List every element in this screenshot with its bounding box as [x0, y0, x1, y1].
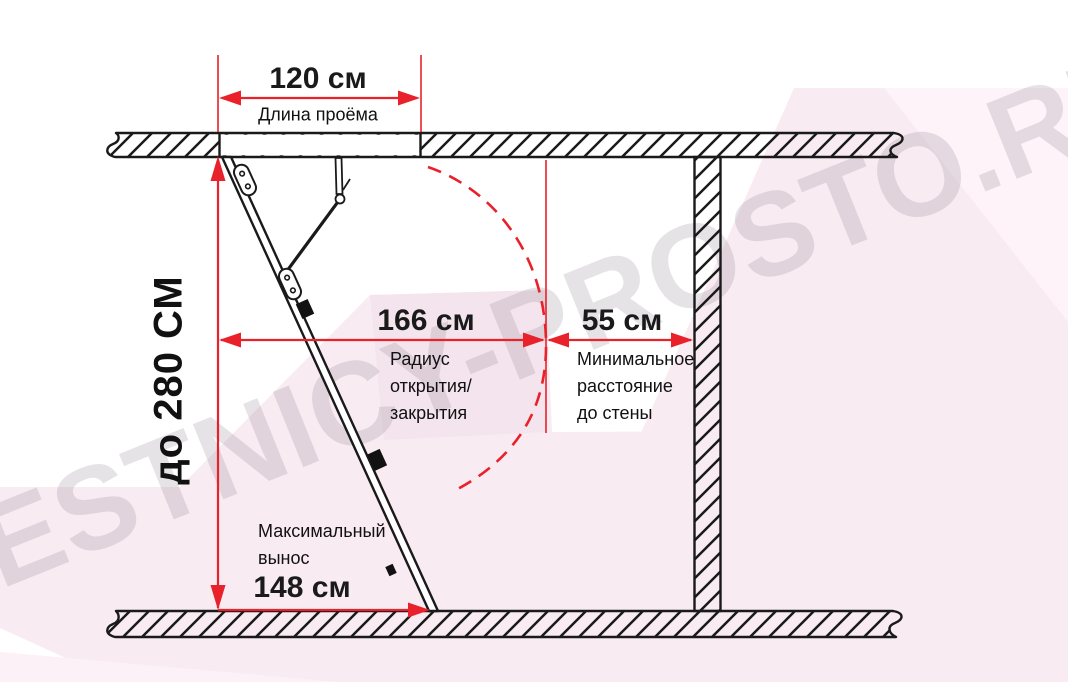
- dimension-radius-label-line3: закрытия: [390, 400, 472, 427]
- arrowhead: [211, 585, 226, 610]
- arrowhead: [547, 333, 569, 348]
- dimension-extension-label: Максимальный вынос: [258, 518, 386, 572]
- arrowhead: [219, 91, 241, 106]
- ladder-foot-stop: [385, 564, 396, 576]
- wall: [695, 157, 721, 611]
- arrowhead: [523, 333, 545, 348]
- dimension-extension-label-line2: вынос: [258, 545, 386, 572]
- ladder-arm-joint-top: [336, 195, 345, 204]
- dimension-wall-value: 55 см: [582, 304, 663, 338]
- ceiling: [107, 133, 902, 157]
- dimension-extension-value: 148 см: [253, 571, 350, 605]
- dimension-opening-label: Длина проёма: [258, 102, 378, 129]
- dimension-radius-label: Радиус открытия/ закрытия: [390, 346, 472, 427]
- dimension-wall-label-line1: Минимальное: [577, 346, 694, 373]
- floor: [107, 611, 901, 637]
- ceiling-opening: [220, 135, 420, 156]
- dimension-wall-label-line2: расстояние: [577, 373, 694, 400]
- dimension-extension-label-line1: Максимальный: [258, 518, 386, 545]
- attic-ladder-dimensions-diagram: LESTNICY-PROSTO.RU: [0, 0, 1068, 682]
- dimension-wall-label-line3: до стены: [577, 400, 694, 427]
- dimension-opening-value: 120 см: [269, 62, 366, 96]
- arrowhead: [398, 91, 420, 106]
- ladder-rod-hook: [343, 179, 350, 190]
- dimension-radius-label-line1: Радиус: [390, 346, 472, 373]
- dimension-radius-value: 166 см: [377, 304, 474, 338]
- dimension-wall-label: Минимальное расстояние до стены: [577, 346, 694, 427]
- ladder-rod: [336, 158, 343, 194]
- dimension-height-value: до 280 СМ: [147, 275, 192, 484]
- dimension-radius-label-line2: открытия/: [390, 373, 472, 400]
- arrowhead: [219, 333, 241, 348]
- ladder-spring-arm: [282, 198, 342, 277]
